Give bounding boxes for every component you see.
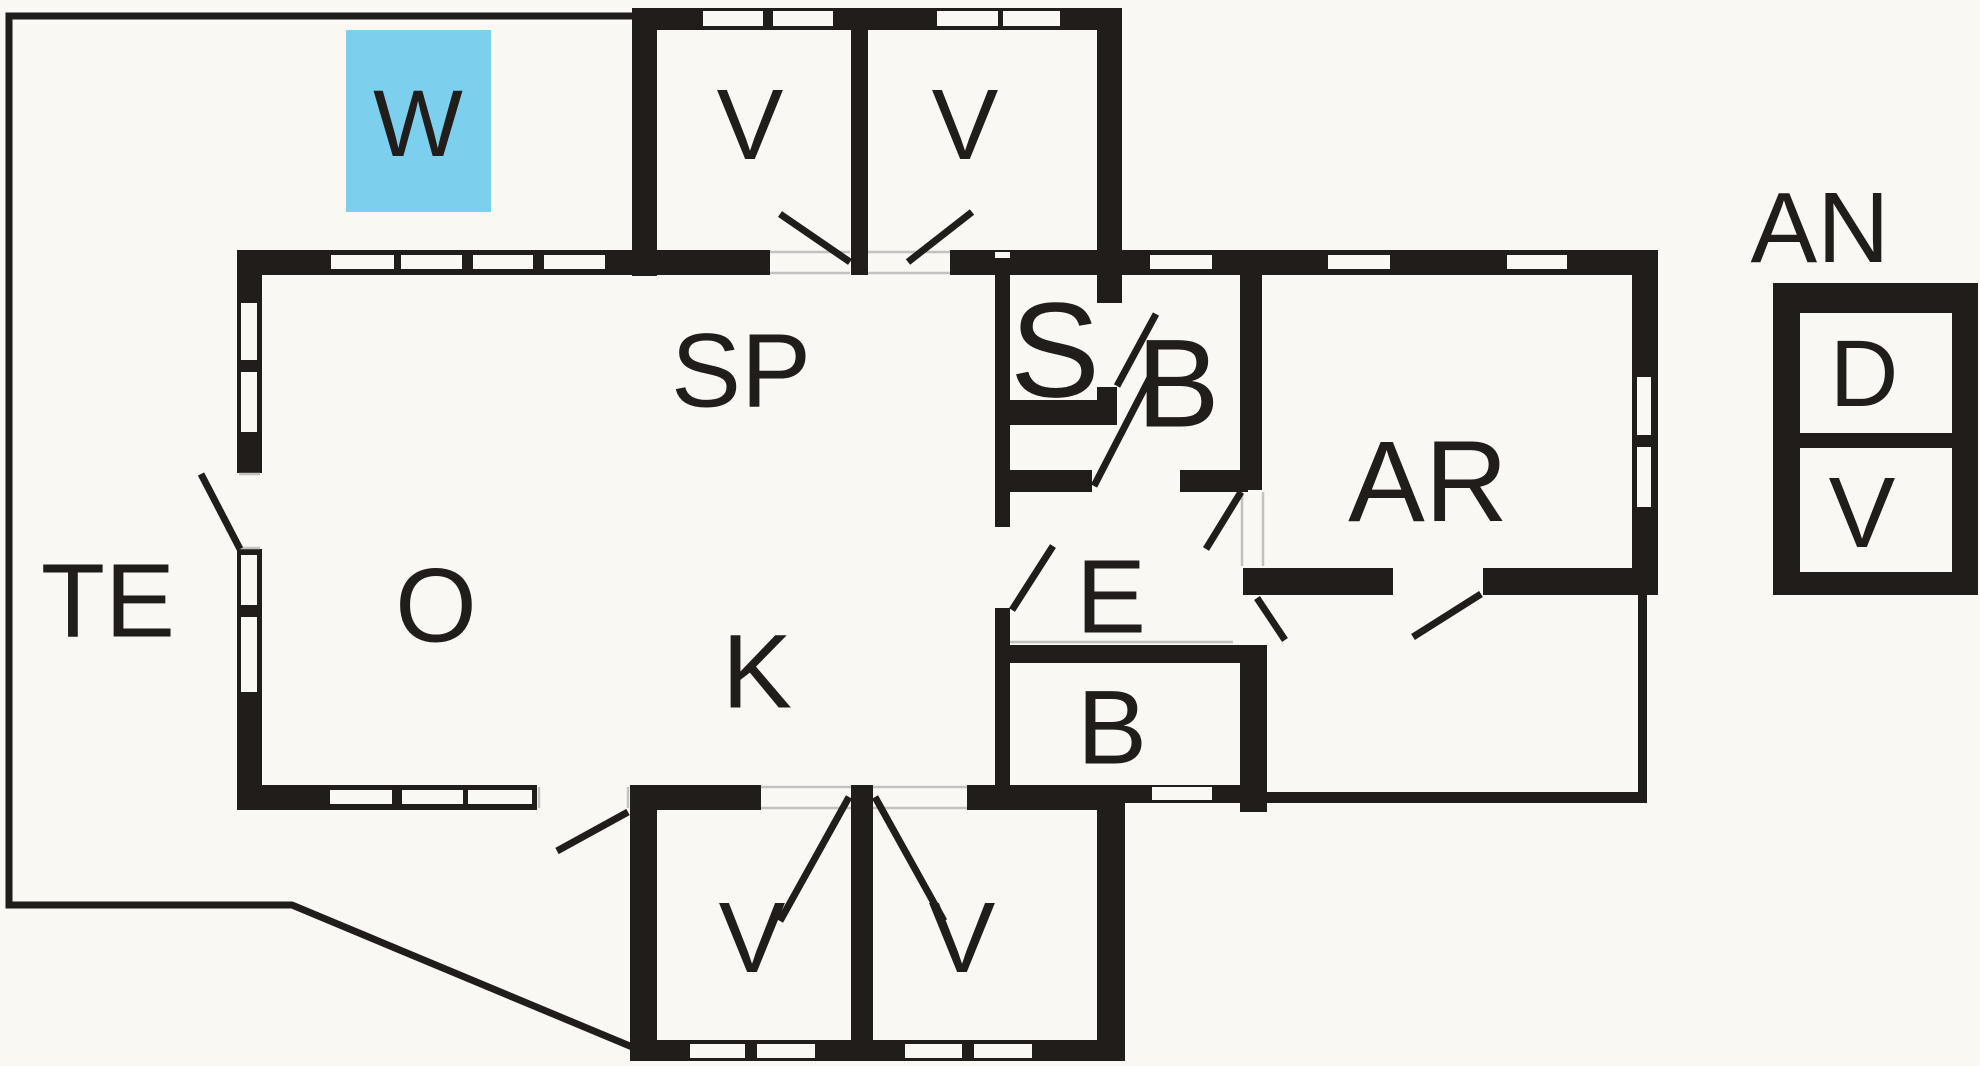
annex-label-an: AN (1751, 172, 1890, 284)
room-label-b-top: B (1136, 315, 1219, 454)
window-icon (468, 790, 532, 804)
window-icon (241, 617, 257, 692)
wall-vblock-bottom-left (630, 785, 657, 1061)
window-icon (402, 790, 463, 804)
room-label-v-bottom-left: V (719, 882, 786, 994)
floor-plan-drawing: TE W O SP K V V S B E B V V AR AN D V (0, 0, 1980, 1061)
wall-wing-bottom (1267, 792, 1647, 803)
room-label-s: S (1010, 275, 1100, 426)
room-label-sp: SP (671, 313, 811, 430)
room-label-w: W (373, 71, 463, 177)
room-label-te: TE (41, 543, 175, 660)
wall-e-top-left (1000, 470, 1092, 492)
window-icon (544, 255, 605, 269)
window-icon (241, 303, 257, 360)
room-label-k: K (722, 614, 792, 731)
annex-label-d: D (1830, 321, 1899, 427)
annex-label-v: V (1829, 457, 1896, 569)
window-icon (241, 555, 257, 605)
window-icon (757, 1044, 815, 1058)
window-icon (905, 1044, 962, 1058)
window-icon (1637, 447, 1651, 507)
wall-wing-right (1638, 595, 1647, 803)
wall-vblock-bottom-topL (657, 785, 761, 810)
window-icon (241, 372, 257, 432)
wall-ar-left (1240, 275, 1262, 490)
room-label-v-top-left: V (717, 69, 784, 181)
window-icon (974, 1044, 1032, 1058)
window-icon (1637, 377, 1651, 435)
wall-vblock-top-center (851, 8, 868, 270)
room-label-v-bottom-right: V (929, 882, 996, 994)
wall-hall-right (1483, 568, 1658, 595)
wall-e-left-lower (995, 608, 1010, 797)
window-icon (1150, 255, 1212, 269)
window-icon (703, 11, 763, 26)
wall-vblock-bottom-right (1097, 785, 1125, 1061)
floor-plan-page: TE W O SP K V V S B E B V V AR AN D V (0, 0, 1980, 1061)
wall-hall-left (1243, 568, 1393, 595)
window-icon (1003, 11, 1060, 26)
room-label-e: E (1076, 539, 1146, 656)
window-icon (773, 11, 833, 26)
window-icon (1507, 255, 1567, 269)
room-label-ar: AR (1348, 418, 1508, 546)
room-label-o: O (395, 548, 477, 665)
wall-vblock-top-right (1097, 8, 1122, 303)
room-label-b-bottom: B (1077, 670, 1147, 787)
wall-e-top-right (1180, 470, 1248, 492)
window-icon (1328, 255, 1390, 269)
window-icon (690, 1044, 745, 1058)
wall-vblock-top-left (632, 8, 657, 276)
wall-vblock-bottom-center (851, 785, 873, 1061)
window-icon (401, 255, 462, 269)
window-icon (1152, 787, 1212, 800)
window-icon (330, 790, 392, 804)
door-opening-terrace (237, 473, 262, 549)
window-icon (331, 255, 394, 269)
window-icon (473, 255, 533, 269)
wall-vblock-bottom-topR (967, 785, 1097, 810)
room-label-v-top-right: V (932, 69, 999, 181)
window-icon (937, 11, 998, 26)
